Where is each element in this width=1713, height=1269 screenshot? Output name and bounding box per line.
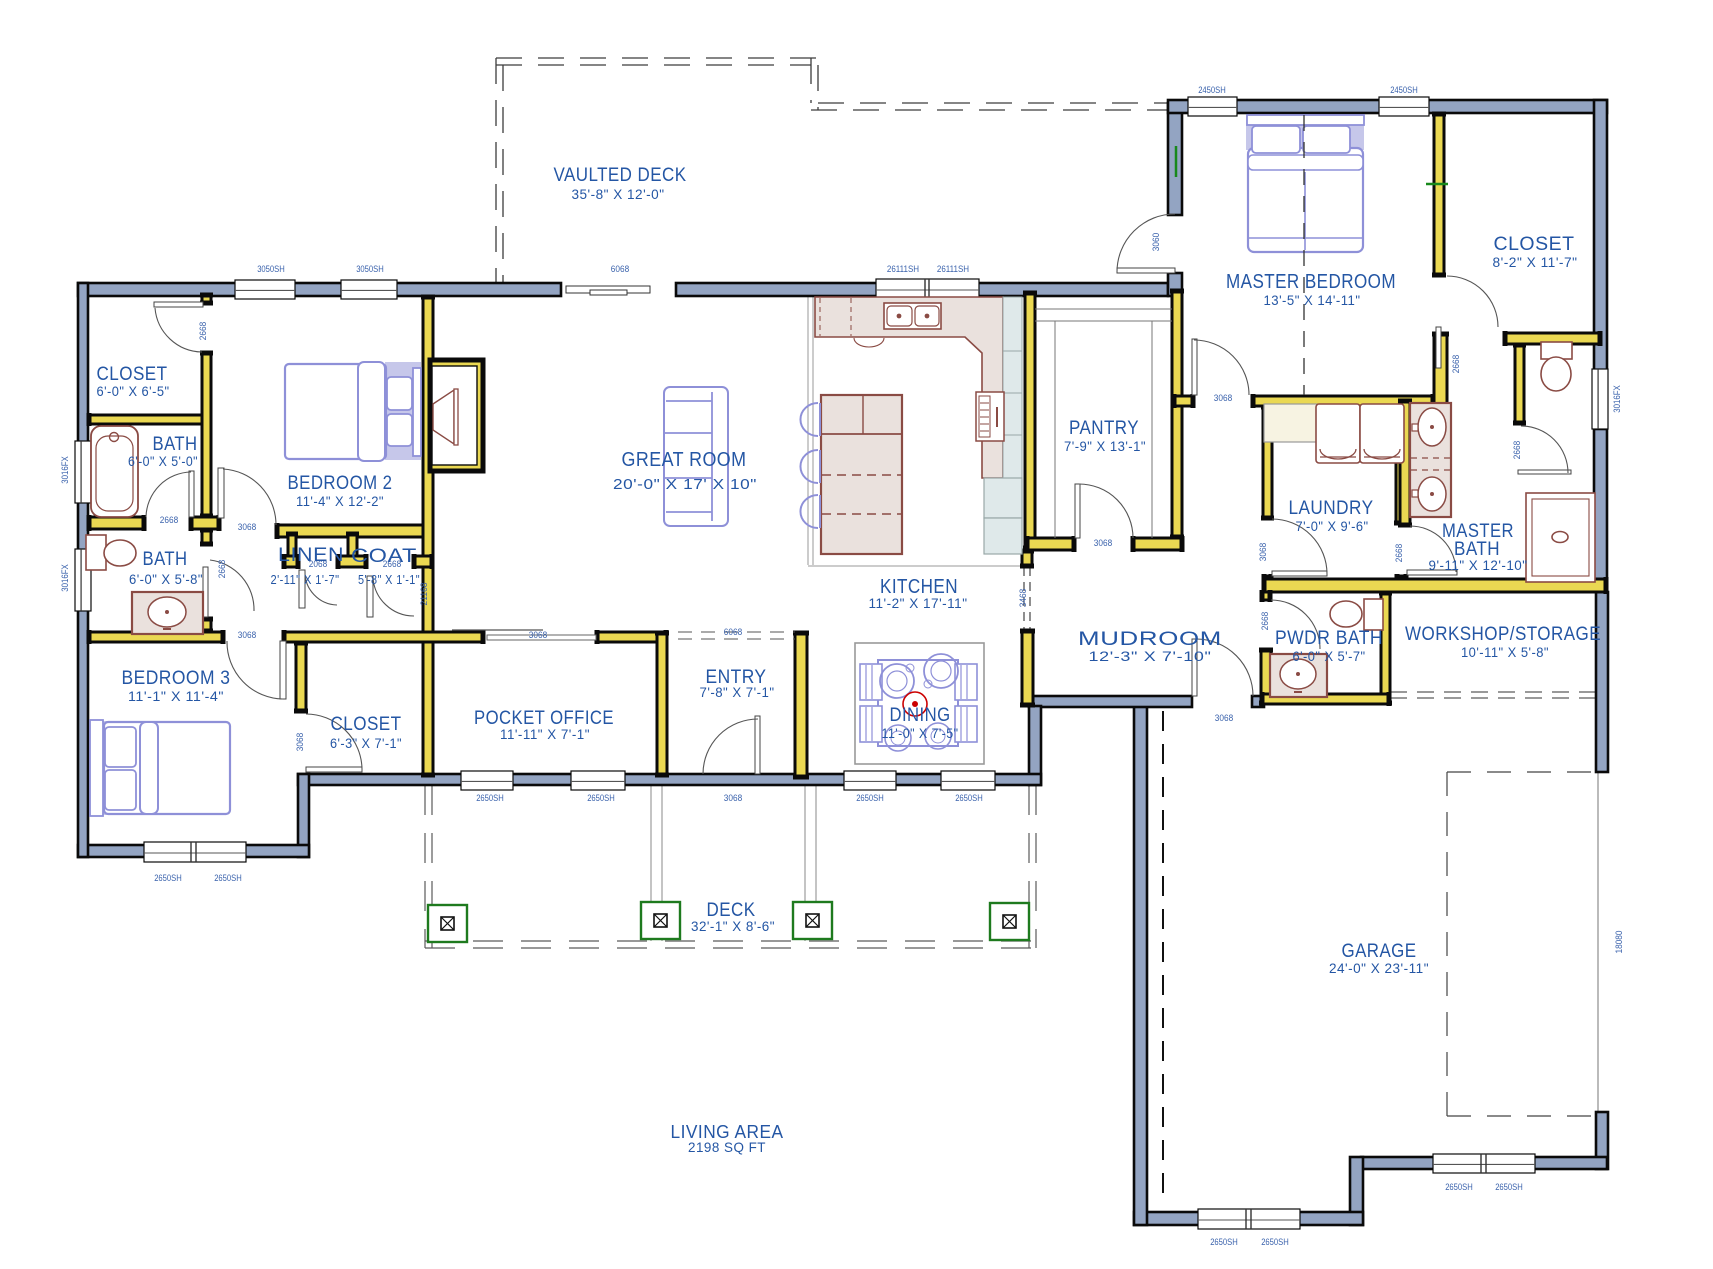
svg-text:2650SH: 2650SH (955, 793, 983, 803)
svg-text:PANTRY: PANTRY (1069, 418, 1139, 439)
svg-text:2668: 2668 (1512, 441, 1522, 459)
svg-text:WORKSHOP/STORAGE: WORKSHOP/STORAGE (1405, 624, 1601, 645)
svg-text:2650SH: 2650SH (1210, 1237, 1238, 1247)
svg-text:3068: 3068 (295, 733, 305, 751)
svg-text:11'-4" X 12'-2": 11'-4" X 12'-2" (296, 493, 384, 509)
svg-text:3016FX: 3016FX (1612, 385, 1622, 413)
svg-text:18080: 18080 (1614, 931, 1624, 954)
svg-text:2650SH: 2650SH (856, 793, 884, 803)
svg-text:2668: 2668 (160, 515, 178, 525)
svg-text:3016FX: 3016FX (60, 564, 70, 592)
svg-text:6068: 6068 (611, 264, 629, 274)
svg-text:10'-11" X 5'-8": 10'-11" X 5'-8" (1461, 644, 1549, 660)
svg-text:13'-5" X 14'-11": 13'-5" X 14'-11" (1264, 292, 1361, 308)
svg-text:12'-3" X 7'-10": 12'-3" X 7'-10" (1089, 648, 1212, 664)
svg-text:2650SH: 2650SH (154, 873, 182, 883)
svg-text:3068: 3068 (724, 793, 742, 803)
svg-text:6'-0" X 5'-7": 6'-0" X 5'-7" (1293, 648, 1366, 664)
svg-text:2'-11" X 1'-7": 2'-11" X 1'-7" (271, 572, 340, 587)
svg-text:MASTER BEDROOM: MASTER BEDROOM (1226, 271, 1396, 293)
svg-text:3068: 3068 (238, 630, 256, 640)
svg-text:26111SH: 26111SH (937, 264, 969, 274)
svg-text:2650SH: 2650SH (1445, 1182, 1473, 1192)
svg-text:5'-8" X 1'-1": 5'-8" X 1'-1" (358, 572, 420, 587)
svg-text:3050SH: 3050SH (356, 264, 384, 274)
svg-text:8'-2" X 11'-7": 8'-2" X 11'-7" (1493, 254, 1578, 270)
svg-text:CLOSET: CLOSET (1494, 234, 1575, 255)
svg-text:2650SH: 2650SH (1261, 1237, 1289, 1247)
svg-text:MUDROOM: MUDROOM (1078, 629, 1222, 650)
svg-text:20'-0" X 17' X 10": 20'-0" X 17' X 10" (613, 476, 757, 493)
svg-text:32'-1" X 8'-6": 32'-1" X 8'-6" (691, 918, 775, 934)
svg-text:3468: 3468 (1018, 589, 1028, 607)
svg-text:GREAT ROOM: GREAT ROOM (622, 449, 747, 471)
svg-text:DINING: DINING (890, 705, 951, 726)
svg-text:6'-3" X 7'-1": 6'-3" X 7'-1" (330, 735, 402, 751)
svg-text:2668: 2668 (1394, 544, 1404, 562)
svg-text:11'-11" X 7'-1": 11'-11" X 7'-1" (500, 726, 590, 742)
svg-text:CLOSET: CLOSET (97, 364, 168, 385)
svg-text:2668: 2668 (217, 560, 227, 578)
svg-text:2668: 2668 (383, 559, 401, 569)
svg-text:BATH: BATH (153, 434, 198, 455)
svg-text:3068: 3068 (1094, 538, 1112, 548)
svg-text:2650SH: 2650SH (214, 873, 242, 883)
svg-text:11'-0" X 7'-5": 11'-0" X 7'-5" (882, 725, 959, 741)
svg-text:3068: 3068 (1215, 713, 1233, 723)
svg-text:2650SH: 2650SH (476, 793, 504, 803)
svg-text:9'-11" X 12'-10": 9'-11" X 12'-10" (1429, 557, 1528, 573)
svg-text:21168: 21168 (419, 583, 429, 606)
svg-text:3068: 3068 (1214, 393, 1232, 403)
svg-text:2668: 2668 (1451, 355, 1461, 373)
svg-text:6'-0" X 5'-0": 6'-0" X 5'-0" (128, 453, 198, 469)
svg-text:3068: 3068 (529, 630, 547, 640)
svg-text:2198 SQ FT: 2198 SQ FT (688, 1139, 766, 1155)
svg-text:2668: 2668 (1260, 612, 1270, 630)
svg-text:2450SH: 2450SH (1390, 85, 1418, 95)
svg-text:26111SH: 26111SH (887, 264, 919, 274)
svg-text:35'-8" X 12'-0": 35'-8" X 12'-0" (572, 186, 665, 202)
svg-text:BATH: BATH (143, 549, 188, 570)
svg-text:2668: 2668 (198, 322, 208, 340)
svg-text:3016FX: 3016FX (60, 456, 70, 484)
svg-text:CLOSET: CLOSET (331, 714, 402, 735)
svg-text:6'-0" X 6'-5": 6'-0" X 6'-5" (97, 383, 170, 399)
svg-text:2650SH: 2650SH (1495, 1182, 1523, 1192)
svg-text:BEDROOM 3: BEDROOM 3 (122, 668, 231, 689)
svg-text:3050SH: 3050SH (257, 264, 285, 274)
svg-text:3068: 3068 (1258, 543, 1268, 561)
svg-text:GARAGE: GARAGE (1342, 941, 1417, 962)
svg-text:2450SH: 2450SH (1198, 85, 1226, 95)
svg-text:11'-2" X 17'-11": 11'-2" X 17'-11" (869, 595, 968, 611)
svg-text:6068: 6068 (724, 627, 742, 637)
svg-text:2068: 2068 (309, 559, 327, 569)
svg-text:BEDROOM 2: BEDROOM 2 (288, 473, 393, 494)
svg-text:7'-8" X 7'-1": 7'-8" X 7'-1" (700, 684, 775, 700)
svg-text:24'-0" X 23'-11": 24'-0" X 23'-11" (1329, 960, 1429, 976)
svg-text:3068: 3068 (238, 522, 256, 532)
svg-text:3060: 3060 (1151, 233, 1161, 251)
svg-text:LAUNDRY: LAUNDRY (1289, 498, 1374, 519)
svg-text:7'-9" X 13'-1": 7'-9" X 13'-1" (1064, 438, 1146, 454)
svg-text:6'-0" X 5'-8": 6'-0" X 5'-8" (129, 571, 203, 587)
svg-text:PWDR BATH: PWDR BATH (1275, 628, 1383, 649)
svg-text:7'-0" X 9'-6": 7'-0" X 9'-6" (1296, 518, 1369, 534)
svg-text:11'-1" X 11'-4": 11'-1" X 11'-4" (128, 688, 224, 704)
svg-text:2650SH: 2650SH (587, 793, 615, 803)
svg-text:VAULTED DECK: VAULTED DECK (554, 165, 687, 186)
